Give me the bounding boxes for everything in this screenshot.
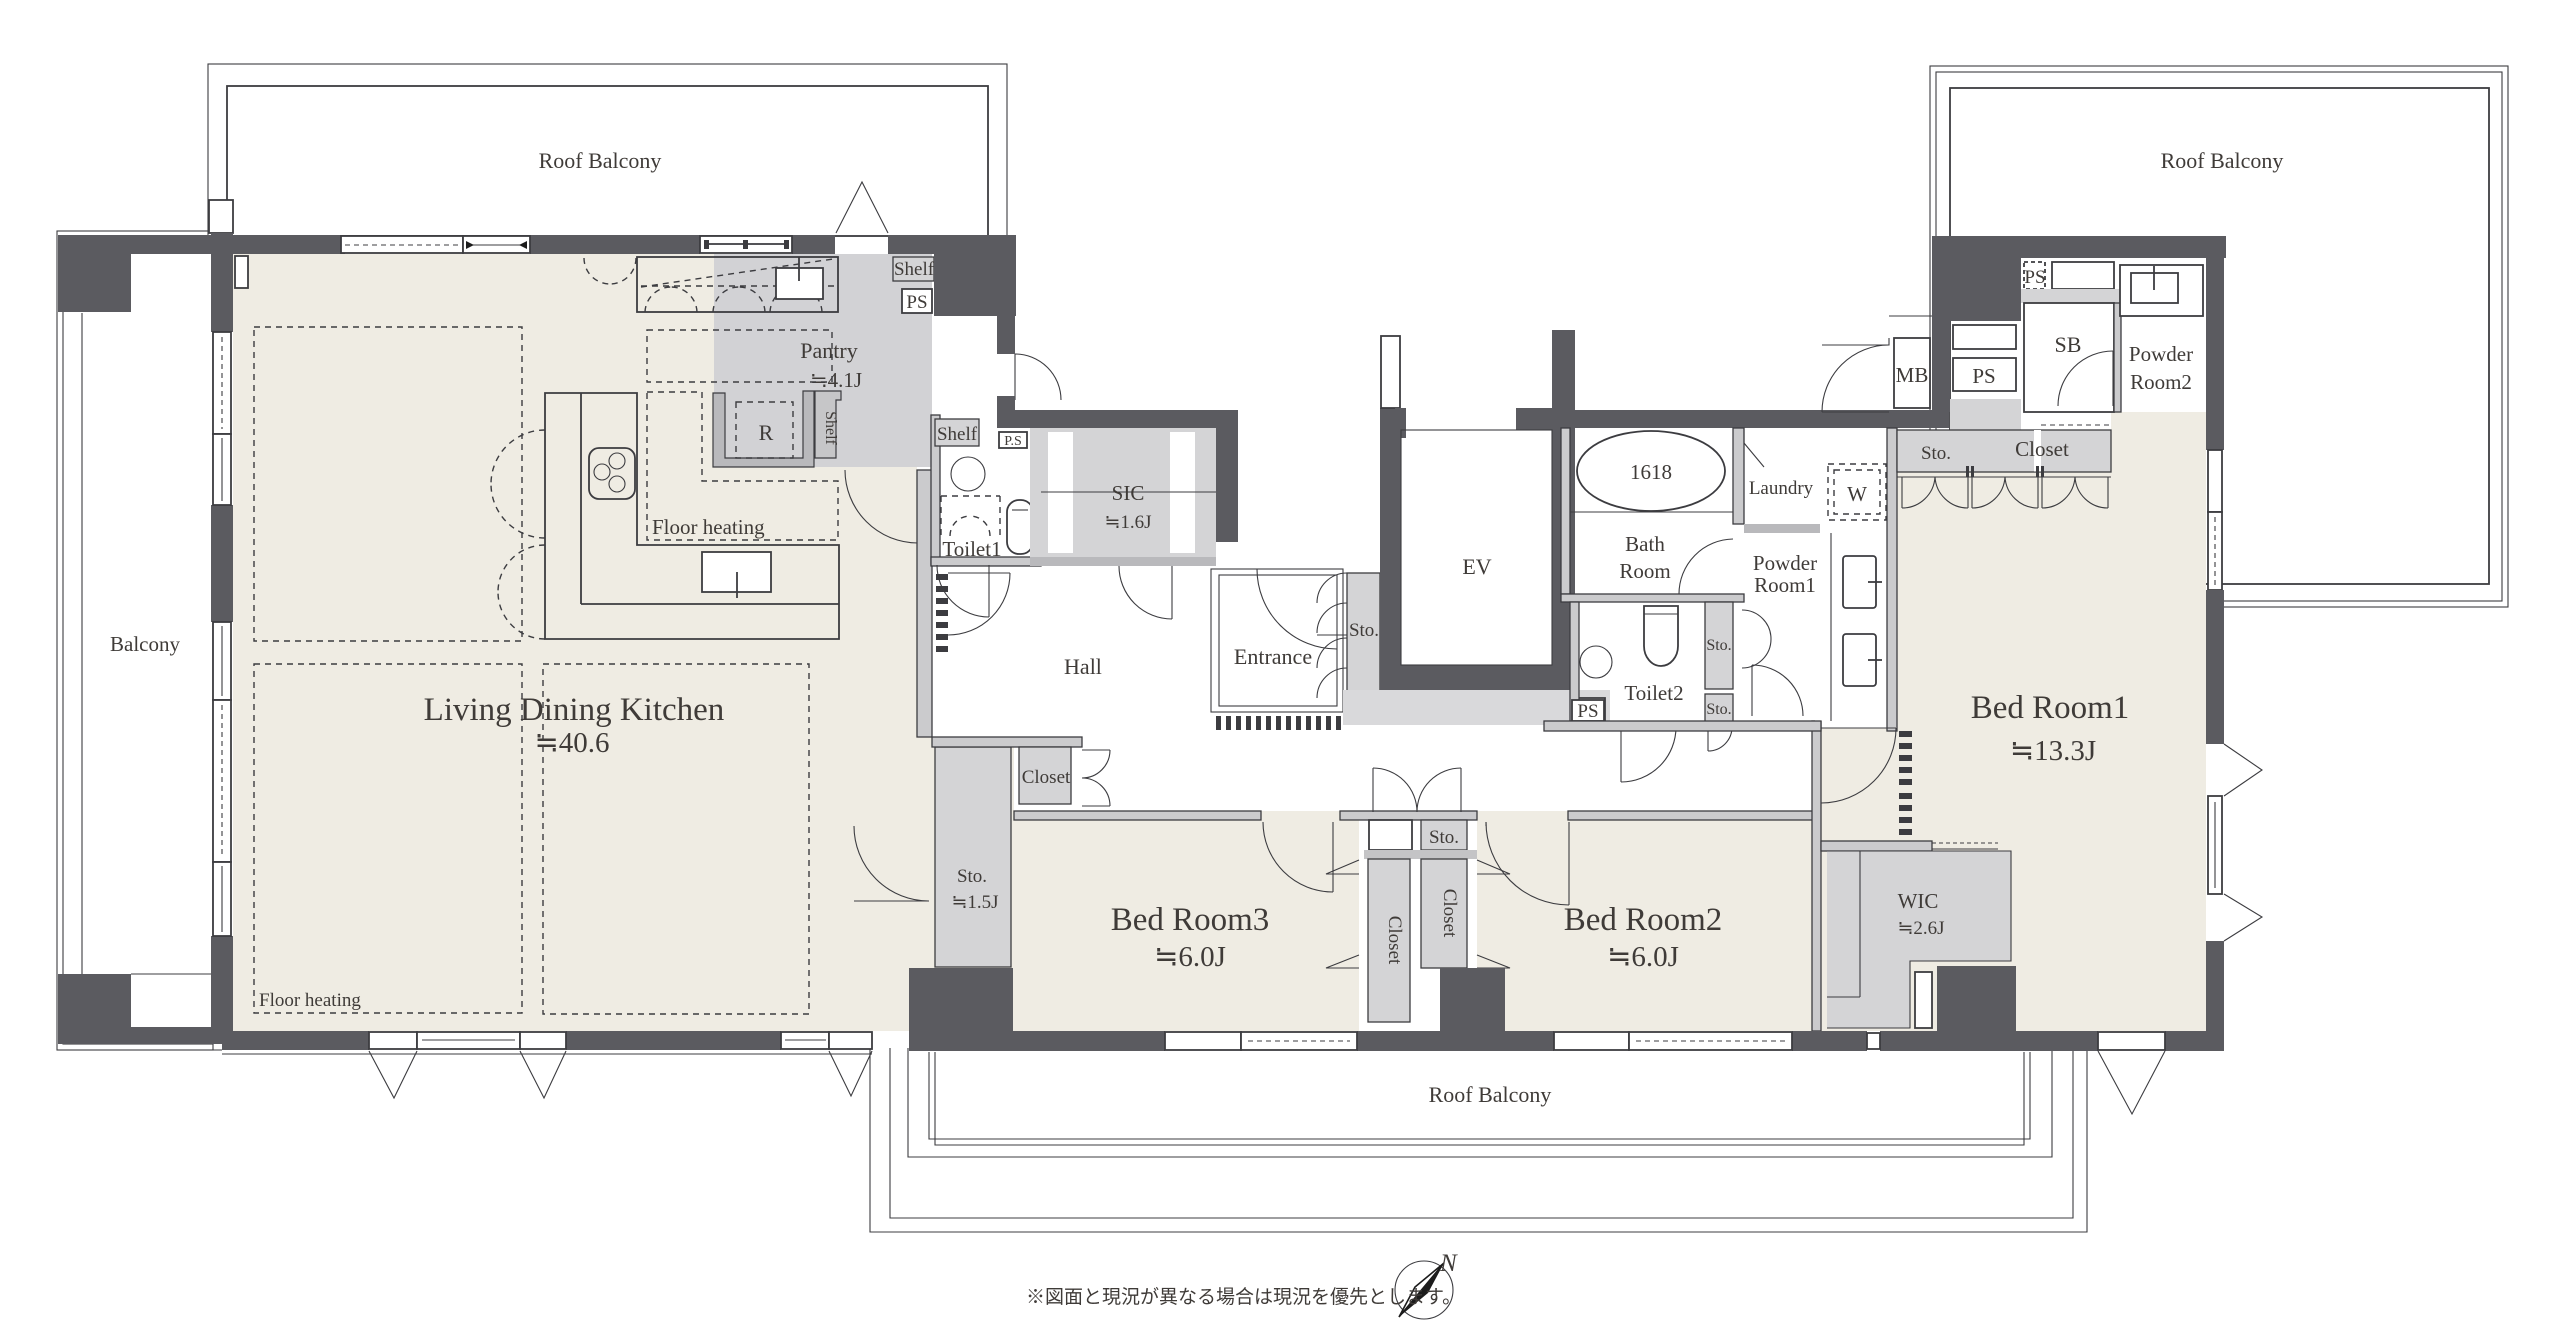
svg-text:Balcony: Balcony xyxy=(110,632,180,656)
svg-text:≒6.0J: ≒6.0J xyxy=(1607,941,1679,973)
svg-text:Sto.: Sto. xyxy=(957,866,987,887)
svg-text:≒13.3J: ≒13.3J xyxy=(2010,735,2096,767)
svg-text:Closet: Closet xyxy=(1022,767,1071,788)
svg-text:Powder: Powder xyxy=(1753,551,1817,575)
svg-text:N: N xyxy=(1439,1250,1458,1277)
svg-text:PS: PS xyxy=(1577,701,1598,722)
svg-text:Floor heating: Floor heating xyxy=(652,515,765,539)
svg-text:Closet: Closet xyxy=(1384,916,1405,965)
svg-text:Room: Room xyxy=(1619,559,1670,583)
svg-text:SIC: SIC xyxy=(1112,481,1145,505)
svg-text:Roof Balcony: Roof Balcony xyxy=(2161,148,2284,173)
svg-text:Room1: Room1 xyxy=(1754,573,1816,597)
svg-text:Room2: Room2 xyxy=(2130,370,2192,394)
svg-text:Bed Room2: Bed Room2 xyxy=(1564,902,1723,938)
svg-text:Closet: Closet xyxy=(2015,437,2069,461)
svg-text:≒1.6J: ≒1.6J xyxy=(1104,512,1151,533)
svg-text:≒1.5J: ≒1.5J xyxy=(951,892,998,913)
svg-text:Shelf: Shelf xyxy=(822,411,839,445)
svg-text:MB: MB xyxy=(1896,363,1929,387)
svg-text:W: W xyxy=(1847,482,1867,506)
svg-text:EV: EV xyxy=(1462,554,1491,579)
svg-text:≒6.0J: ≒6.0J xyxy=(1154,941,1226,973)
svg-text:Shelf: Shelf xyxy=(894,259,935,280)
svg-text:Toilet1: Toilet1 xyxy=(942,537,1001,561)
svg-text:Sto.: Sto. xyxy=(1706,701,1731,718)
svg-text:≒4.1J: ≒4.1J xyxy=(810,368,862,392)
svg-text:PS: PS xyxy=(906,292,927,313)
svg-text:Pantry: Pantry xyxy=(800,338,857,363)
svg-text:Sto.: Sto. xyxy=(1429,827,1459,848)
svg-text:1618: 1618 xyxy=(1630,460,1672,484)
svg-text:Floor heating: Floor heating xyxy=(259,990,361,1011)
svg-text:≒2.6J: ≒2.6J xyxy=(1897,918,1944,939)
svg-text:SB: SB xyxy=(2055,332,2082,357)
svg-text:Sto.: Sto. xyxy=(1706,637,1731,654)
svg-text:Powder: Powder xyxy=(2129,342,2193,366)
svg-text:Toilet2: Toilet2 xyxy=(1624,681,1683,705)
svg-text:Living Dining Kitchen: Living Dining Kitchen xyxy=(424,692,725,728)
svg-text:※図面と現況が異なる場合は現況を優先とします。: ※図面と現況が異なる場合は現況を優先とします。 xyxy=(1026,1286,1461,1308)
svg-text:Shelf: Shelf xyxy=(937,424,978,445)
svg-text:Roof Balcony: Roof Balcony xyxy=(539,148,662,173)
svg-text:P.S: P.S xyxy=(1004,434,1022,449)
svg-text:Roof Balcony: Roof Balcony xyxy=(1429,1082,1552,1107)
svg-text:WIC: WIC xyxy=(1898,889,1939,913)
svg-text:Hall: Hall xyxy=(1064,654,1102,679)
svg-text:Bath: Bath xyxy=(1625,532,1665,556)
svg-text:Laundry: Laundry xyxy=(1749,478,1814,499)
svg-text:PS: PS xyxy=(2024,267,2045,288)
svg-text:Sto.: Sto. xyxy=(1921,443,1951,464)
svg-text:PS: PS xyxy=(1972,364,1995,388)
svg-text:Bed Room3: Bed Room3 xyxy=(1111,902,1270,938)
svg-text:≒40.6: ≒40.6 xyxy=(534,727,609,759)
svg-text:R: R xyxy=(759,420,774,445)
svg-text:Sto.: Sto. xyxy=(1349,620,1379,641)
svg-text:Closet: Closet xyxy=(1439,889,1460,938)
svg-text:Entrance: Entrance xyxy=(1234,644,1312,669)
svg-text:Bed Room1: Bed Room1 xyxy=(1971,690,2130,726)
